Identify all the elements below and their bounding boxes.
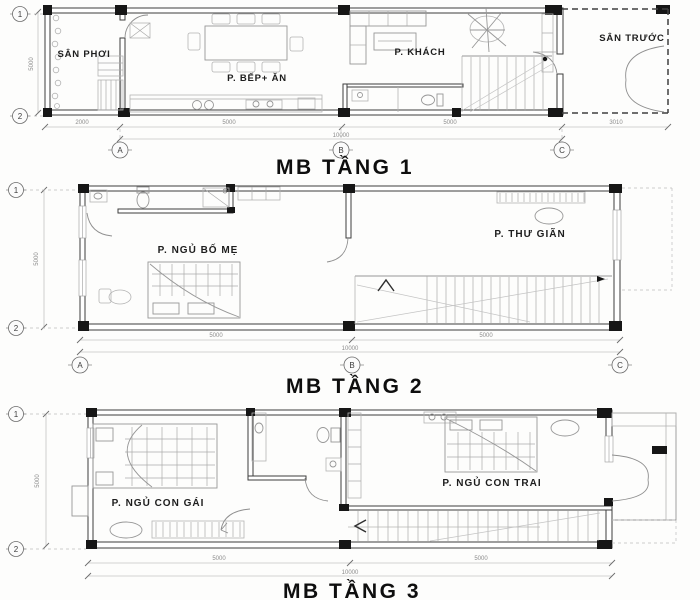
floor1-utility-yard-items — [52, 15, 148, 110]
dim-floor1-seg2: 5000 — [222, 120, 236, 126]
direction-arrow — [597, 276, 605, 282]
balcony-door-arcs — [612, 455, 648, 501]
kitchen-counter — [130, 95, 322, 112]
dim-floor2-seg1: 5000 — [209, 333, 223, 339]
grid-label: 1 — [14, 410, 19, 419]
floor3-plan: P. NGỦ CON GÁI P. NGỦ CON TRAI 5000 5000… — [6, 407, 676, 600]
floor3-stairs — [348, 511, 600, 541]
dim-floor3-seg2: 5000 — [474, 556, 488, 562]
dim-floor1-height: 5000 — [29, 57, 35, 71]
toilet — [317, 428, 329, 443]
floor2-canopy-outline — [622, 188, 672, 290]
floor1-stairs — [462, 56, 552, 112]
grid-label: C — [617, 361, 623, 370]
grid-bubble-floor1-row1: 1 — [10, 7, 30, 22]
dim-floor3-seg1: 5000 — [212, 556, 226, 562]
stairs-down-arrow — [355, 520, 366, 532]
room-label-master-bedroom: P. NGỦ BỐ MẸ — [158, 242, 239, 256]
grid-label: A — [77, 361, 83, 370]
grid-label: B — [349, 361, 354, 370]
oval-table — [535, 208, 563, 224]
grid-label: 2 — [14, 324, 19, 333]
grid-bubble-floor2-colB: B — [340, 357, 364, 373]
room-label-front-yard: SÂN TRƯỚC — [599, 32, 664, 44]
dim-floor2-seg2: 5000 — [479, 333, 493, 339]
floor1-walls — [43, 5, 670, 117]
stairs-up-arrow — [378, 280, 394, 291]
grid-bubble-floor2-colA: A — [68, 357, 92, 373]
grid-bubble-floor1-colC: C — [550, 142, 574, 158]
grid-label: 1 — [18, 10, 23, 19]
floor3-balcony — [612, 413, 676, 543]
dim-floor2-height: 5000 — [34, 252, 40, 266]
sink — [90, 190, 107, 202]
dim-floor2-total: 10000 — [342, 346, 359, 352]
room-label-living-room: P. KHÁCH — [394, 47, 445, 58]
grid-bubble-floor3-row2: 2 — [6, 542, 26, 557]
floor3-daughter-bedroom-furniture — [93, 424, 250, 538]
floor3-bathroom — [252, 413, 341, 501]
grid-label: B — [338, 146, 343, 155]
grid-label: 1 — [14, 186, 19, 195]
gate-leaf-arc — [626, 46, 664, 80]
grid-label: C — [559, 146, 565, 155]
grid-bubble-floor2-row2: 2 — [6, 321, 26, 336]
floor3-title: MB TẦNG 3 — [283, 580, 421, 600]
rug — [551, 420, 579, 436]
room-label-son-bedroom: P. NGỦ CON TRAI — [442, 476, 541, 489]
toilet — [422, 95, 435, 105]
dining-table — [205, 26, 287, 60]
toilet — [137, 192, 149, 208]
stool — [110, 522, 142, 538]
floor1-title: MB TẦNG 1 — [276, 156, 414, 179]
floor-plan-sheet: SÂN PHƠI P. BẾP+ ĂN P. KHÁCH SÂN TRƯỚC 5… — [0, 0, 700, 600]
room-label-kitchen-dining: P. BẾP+ ĂN — [227, 73, 287, 84]
dim-floor3-height: 5000 — [35, 474, 41, 488]
floor2-walls — [78, 184, 622, 331]
floor2-stairs — [355, 276, 612, 324]
floor1-living-room-furniture — [350, 8, 553, 72]
bed — [93, 424, 217, 488]
bed — [148, 262, 240, 318]
wardrobe — [348, 413, 361, 498]
grid-label: A — [117, 146, 123, 155]
sink — [326, 458, 341, 471]
floor1-plan: SÂN PHƠI P. BẾP+ ĂN P. KHÁCH SÂN TRƯỚC 5… — [10, 5, 671, 179]
grid-label: 2 — [18, 112, 23, 121]
tv-cabinet — [542, 14, 553, 72]
room-label-relax-room: P. THƯ GIÃN — [494, 227, 565, 240]
vanity — [252, 413, 266, 461]
room-label-daughter-bedroom: P. NGỦ CON GÁI — [112, 496, 205, 509]
floor1-kitchen-dining-furniture — [130, 14, 322, 112]
grid-label: 2 — [14, 545, 19, 554]
grid-bubble-floor2-row1: 1 — [6, 183, 26, 198]
dim-floor3-total: 10000 — [342, 570, 359, 576]
grid-bubble-floor1-row2: 2 — [10, 109, 30, 124]
floor1-bathroom — [352, 87, 443, 112]
grid-bubble-floor3-row1: 1 — [6, 407, 26, 422]
sink — [352, 90, 368, 101]
plant-sketch — [468, 8, 506, 52]
grid-bubble-floor2-colC: C — [608, 357, 632, 373]
dim-floor1-seg1: 2000 — [75, 120, 89, 126]
grid-bubble-floor1-colA: A — [108, 142, 132, 158]
dim-floor1-seg3: 5000 — [443, 120, 457, 126]
floor-plan-drawing: SÂN PHƠI P. BẾP+ ĂN P. KHÁCH SÂN TRƯỚC 5… — [0, 0, 700, 600]
floor2-plan: P. NGỦ BỐ MẸ P. THƯ GIÃN 5000 5000 5000 … — [6, 183, 672, 399]
dim-floor1-seg4: 3010 — [609, 120, 623, 126]
side-table — [109, 290, 131, 304]
floor2-relax-room-furniture — [497, 192, 585, 224]
floor2-title: MB TẦNG 2 — [286, 375, 424, 398]
room-label-utility-yard: SÂN PHƠI — [57, 48, 110, 60]
